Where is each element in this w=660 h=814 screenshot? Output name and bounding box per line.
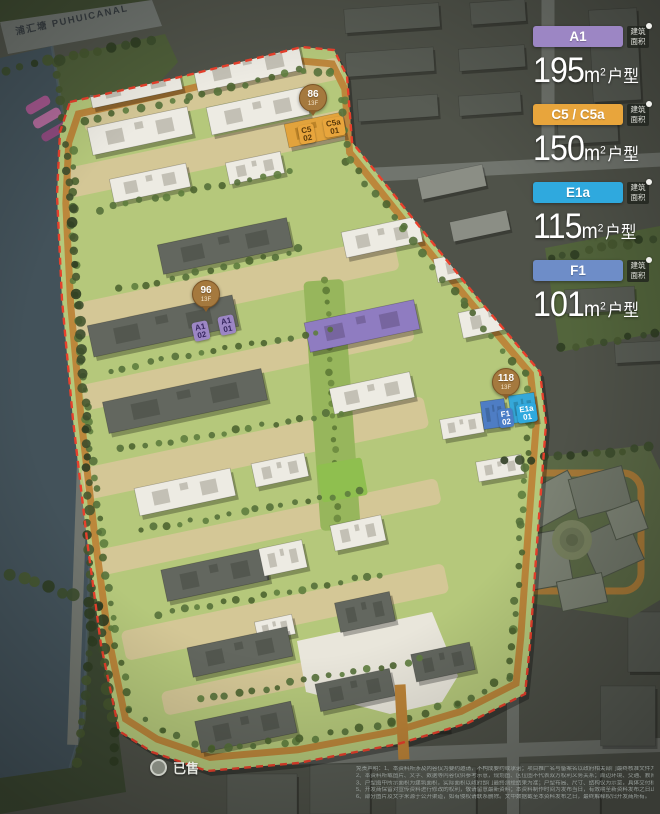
marker-circle: 118 13F: [492, 368, 520, 396]
unit-area: 101m2户型: [533, 285, 649, 325]
unit-code-badge: E1a: [533, 182, 623, 203]
unit-tag: F1 02: [497, 408, 515, 429]
area-type-badge: 建筑面积: [627, 26, 649, 48]
unit-area: 195m2户型: [533, 51, 649, 91]
area-type-badge: 建筑面积: [627, 260, 649, 282]
sold-label: 已售: [173, 758, 199, 777]
unit-code-badge: F1: [533, 260, 623, 281]
sold-legend: 已售: [150, 758, 199, 777]
disclaimer-line: 3、户型图中所示面积为建筑面积，实际面积以政府部门最终测绘结果为准；户型布局、尺…: [356, 780, 654, 787]
marker-pointer-icon: [309, 110, 317, 116]
unit-tag: C5 02: [297, 123, 316, 145]
building-number-marker: 86 13F: [299, 84, 327, 116]
area-type-badge: 建筑面积: [627, 182, 649, 204]
legend-entry-0: A1 建筑面积 195m2户型: [533, 26, 659, 91]
marker-pointer-icon: [202, 306, 210, 312]
legend-entry-2: E1a 建筑面积 115m2户型: [533, 182, 659, 247]
sold-dot-icon: [150, 759, 167, 776]
disclaimer-text: 免责声明：1、本资料所涉及内容仅为要约邀请，不构成要约或承诺；项目推广名与备案名…: [356, 766, 654, 801]
unit-area: 115m2户型: [533, 207, 649, 247]
disclaimer-line: 5、开发商保留对宣传资料进行修改的权利，敬请留意最新资料；本资料制作时间为发布当…: [356, 787, 654, 794]
building-number-marker: 118 13F: [492, 368, 520, 400]
disclaimer-line: 2、本资料所载图片、文字、数据等内容仅供参考示意，规划图、区位图不代表双方权利义…: [356, 773, 654, 780]
legend-entry-1: C5 / C5a 建筑面积 150m2户型: [533, 104, 659, 169]
unit-area: 150m2户型: [533, 129, 649, 169]
disclaimer-line: 6、部分图片及文字来源于公开渠道，如有侵权请联系删除。文中数据截至本资料发布之日…: [356, 794, 654, 801]
disclaimer-line: 免责声明：1、本资料所涉及内容仅为要约邀请，不构成要约或承诺；项目推广名与备案名…: [356, 766, 654, 773]
marker-circle: 86 13F: [299, 84, 327, 112]
unit-type-legend: A1 建筑面积 195m2户型 C5 / C5a 建筑面积 150m2户型 E1…: [533, 26, 659, 338]
unit-code-badge: A1: [533, 26, 623, 47]
marker-pointer-icon: [502, 394, 510, 400]
unit-code-badge: C5 / C5a: [533, 104, 623, 125]
legend-entry-3: F1 建筑面积 101m2户型: [533, 260, 659, 325]
unit-tag: C5a 01: [322, 116, 346, 138]
marker-circle: 96 13F: [192, 280, 220, 308]
unit-tag: E1a 01: [516, 402, 539, 424]
area-type-badge: 建筑面积: [627, 104, 649, 126]
building-number-marker: 96 13F: [192, 280, 220, 312]
site-plan-poster: 浦汇塘 PUHUICANAL A1 建筑面积 195m2户型 C5 / C5a …: [0, 0, 660, 814]
